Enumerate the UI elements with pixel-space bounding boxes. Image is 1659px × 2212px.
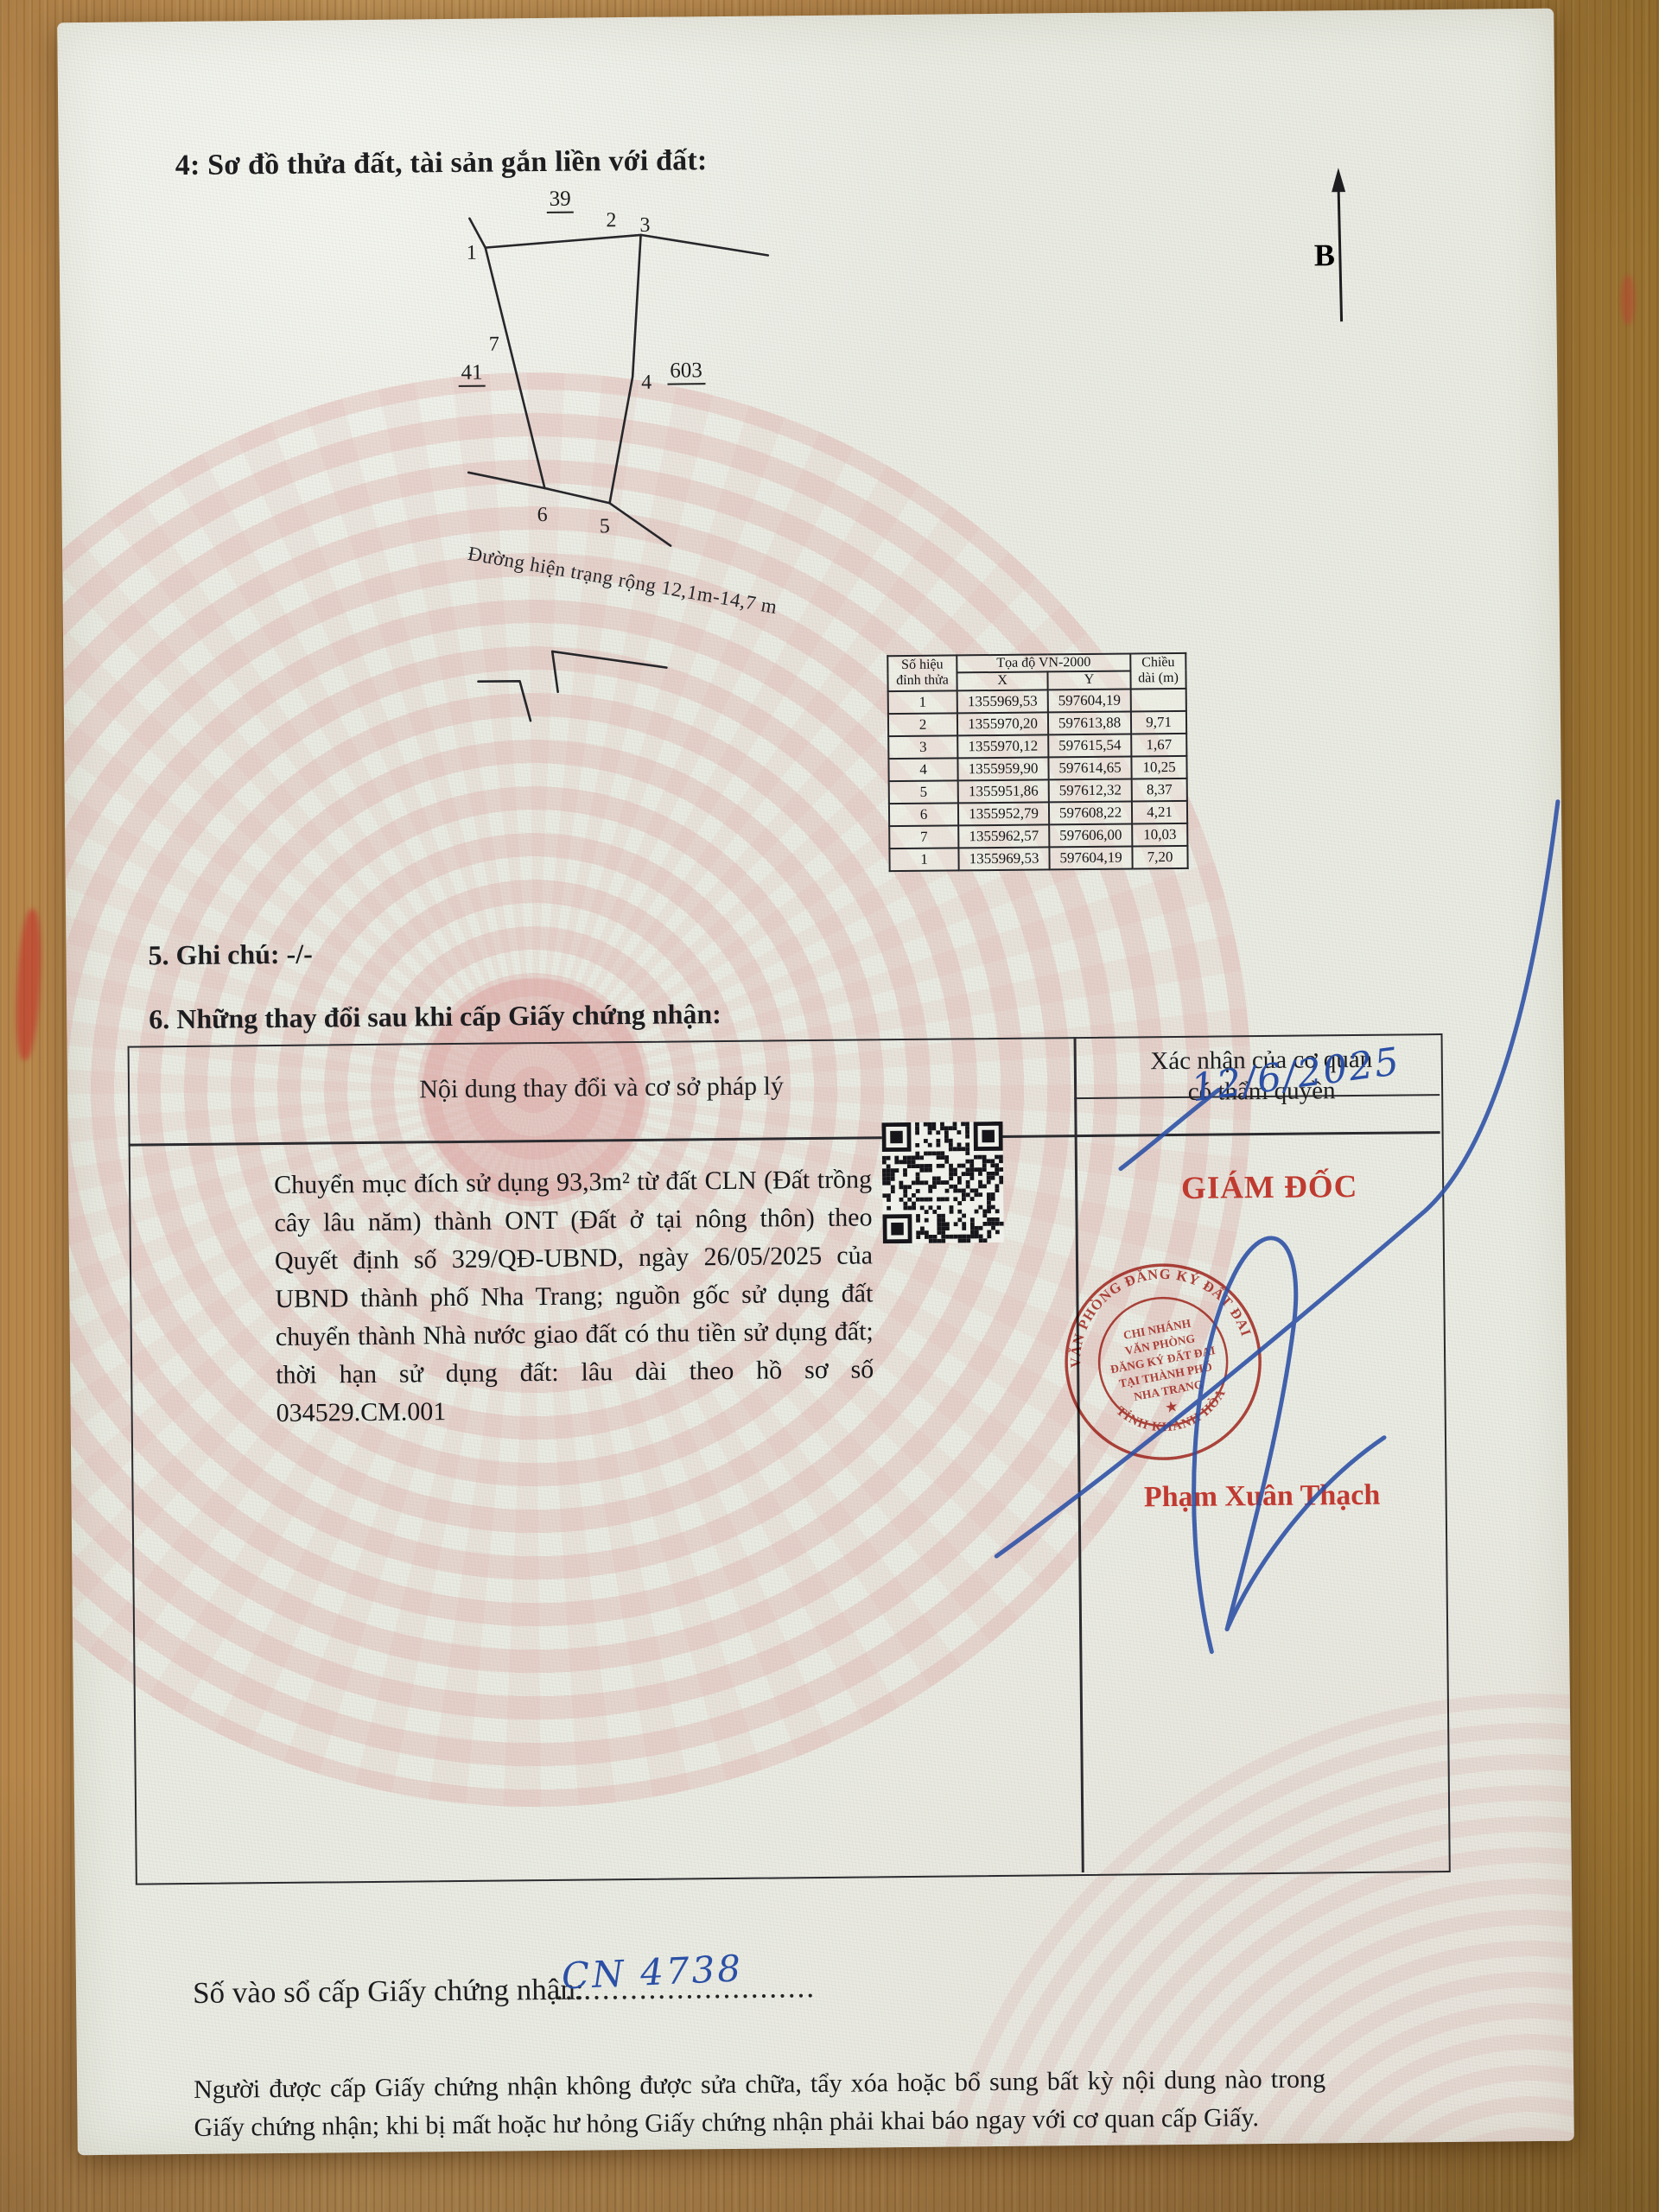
approver-name: Phạm Xuân Thạch	[1144, 1479, 1381, 1515]
cell: 1355951,86	[958, 779, 1049, 803]
parcel-label-39: 39	[547, 188, 574, 213]
cell: 4	[888, 758, 957, 781]
coord-row: 71355962,57597606,0010,03	[889, 823, 1187, 849]
coord-row: 11355969,53597604,19	[888, 689, 1186, 714]
registry-label: Số vào sổ cấp Giấy chứng nhận:	[193, 1973, 584, 2011]
col-header-length: Chiều dài (m)	[1130, 653, 1185, 689]
cell: 597606,00	[1049, 823, 1132, 847]
col-header-x: X	[957, 672, 1047, 690]
cell: 7	[889, 825, 958, 849]
cell: 1355962,57	[958, 824, 1049, 848]
vertex-label-5: 5	[600, 515, 610, 538]
cell: 1355952,79	[958, 802, 1049, 825]
vertex-label-3: 3	[639, 214, 650, 238]
photo-wooden-table: { "section4": { "title": "4: Sơ đồ thửa …	[0, 0, 1659, 2212]
cell: 10,03	[1132, 823, 1187, 847]
north-label: B	[1314, 237, 1335, 273]
vertex-label-7: 7	[489, 333, 499, 356]
footer-warning-text: Người được cấp Giấy chứng nhận không đượ…	[194, 2060, 1326, 2147]
col-header-vertex: Số hiệu đỉnh thửa	[887, 655, 957, 691]
cell: 597604,19	[1049, 846, 1132, 869]
parcel-label-41: 41	[458, 361, 485, 387]
vertex-label-6: 6	[537, 504, 548, 527]
col-header-coords: Tọa độ VN-2000	[957, 653, 1130, 672]
cell: 1,67	[1131, 734, 1186, 757]
approver-role: GIÁM ĐỐC	[1181, 1168, 1358, 1207]
stamp-star-icon: ★	[1165, 1400, 1179, 1415]
coordinate-table: Số hiệu đỉnh thửa Tọa độ VN-2000 Chiều d…	[887, 652, 1188, 872]
cell: 1355970,12	[957, 734, 1048, 758]
cell: 9,71	[1131, 711, 1186, 734]
cell: 597614,65	[1048, 756, 1131, 779]
cell: 597604,19	[1048, 689, 1131, 712]
cell: 1	[888, 690, 957, 714]
coord-row: 11355969,53597604,197,20	[889, 846, 1187, 871]
cell: 7,20	[1132, 846, 1187, 869]
cell: 597608,22	[1049, 801, 1132, 824]
office-stamp: VĂN PHÒNG ĐĂNG KÝ ĐẤT ĐAI TỈNH KHÁNH HÒA…	[1045, 1243, 1282, 1481]
cell: 8,37	[1132, 779, 1187, 802]
coord-row: 21355970,20597613,889,71	[888, 711, 1186, 736]
cell: 1355959,90	[957, 757, 1048, 780]
red-paint-smudge	[13, 908, 43, 1060]
cell: 1	[889, 848, 958, 871]
cell: 1355969,53	[957, 690, 1048, 713]
vertex-label-2: 2	[606, 209, 616, 232]
section4-title: 4: Sơ đồ thửa đất, tài sản gắn liền với …	[175, 144, 708, 182]
cell: 597615,54	[1048, 734, 1131, 757]
changes-col1-header: Nội dung thay đổi và cơ sở pháp lý	[419, 1071, 784, 1104]
change-description: Chuyển mục đích sử dụng 93,3m² từ đất CL…	[274, 1160, 874, 1433]
cell: 597612,32	[1049, 779, 1132, 802]
qr-code	[881, 1122, 1003, 1243]
cell: 1355970,20	[957, 712, 1048, 735]
cell: 2	[888, 713, 957, 736]
cell: 4,21	[1132, 801, 1187, 824]
col-header-y: Y	[1047, 671, 1130, 690]
vertex-label-4: 4	[641, 372, 652, 395]
cell	[1131, 689, 1186, 712]
cell: 597613,88	[1048, 711, 1131, 734]
coord-row: 41355959,90597614,6510,25	[888, 756, 1186, 781]
coord-row: 61355952,79597608,224,21	[889, 801, 1187, 826]
section6-title: 6. Những thay đổi sau khi cấp Giấy chứng…	[149, 998, 721, 1035]
certificate-page: 4: Sơ đồ thửa đất, tài sản gắn liền với …	[57, 9, 1574, 2156]
cell: 10,25	[1131, 756, 1186, 779]
cell: 3	[888, 735, 957, 759]
vertex-label-1: 1	[467, 242, 477, 265]
road-caption: Đường hiện trạng rộng 12,1m-14,7 m	[466, 543, 779, 619]
cell: 1355969,53	[958, 847, 1049, 870]
section5-title: 5. Ghi chú: -/-	[148, 938, 313, 972]
coord-row: 31355970,12597615,541,67	[888, 734, 1186, 759]
registry-number-handwritten: CN 4738	[561, 1947, 744, 1997]
cell: 5	[889, 780, 958, 804]
parcel-label-603: 603	[667, 359, 705, 385]
cell: 6	[889, 803, 958, 826]
red-paint-dot	[1621, 275, 1635, 325]
coord-row: 51355951,86597612,328,37	[889, 779, 1187, 804]
